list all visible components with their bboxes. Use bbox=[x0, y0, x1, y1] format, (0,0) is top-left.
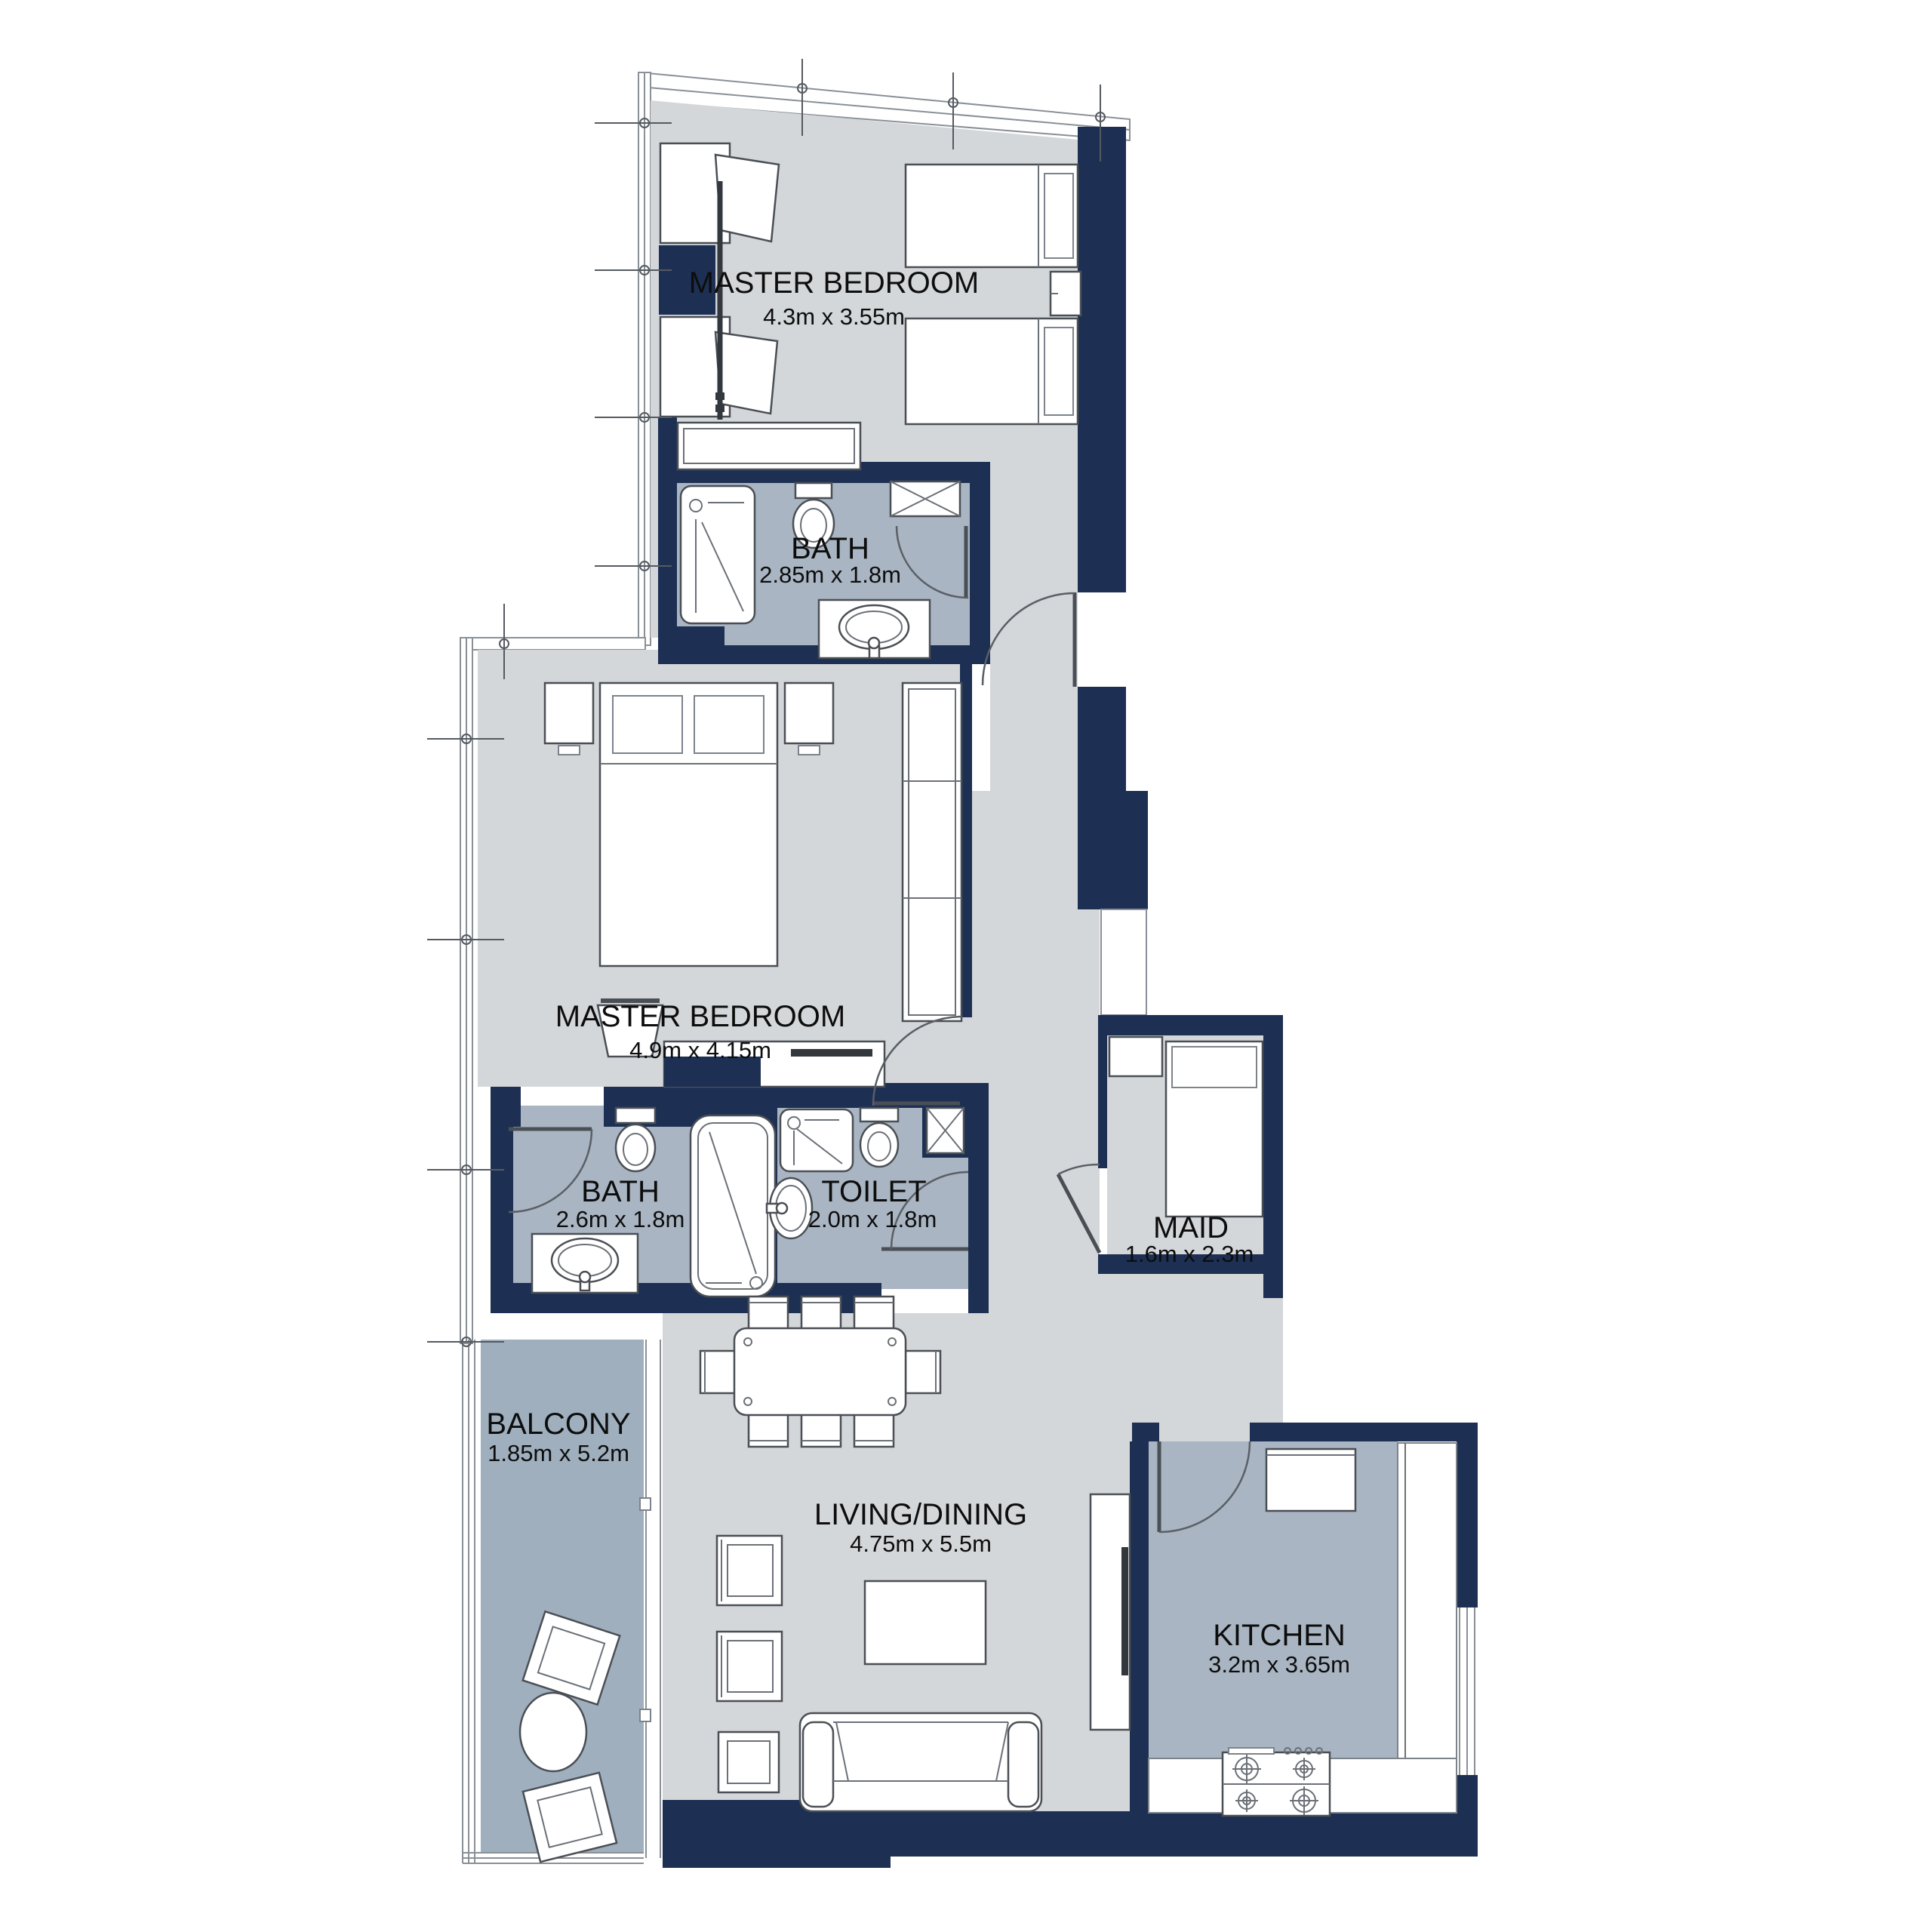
tv-icon bbox=[1121, 1547, 1128, 1675]
sink-vanity-icon bbox=[819, 600, 930, 658]
pillow-icon bbox=[613, 696, 682, 753]
wall-kitchen-top-a bbox=[1132, 1423, 1159, 1441]
wall-bath1-left bbox=[658, 417, 677, 645]
sofa-icon bbox=[800, 1713, 1041, 1811]
nightstand-icon bbox=[545, 683, 593, 743]
window-recess bbox=[1101, 909, 1146, 1015]
wall-kitchen-left bbox=[1130, 1441, 1149, 1811]
floor-plan-page: MASTER BEDROOM 4.3m x 3.55m BATH 2.85m x… bbox=[0, 0, 1932, 1932]
room-dims: 4.75m x 5.5m bbox=[850, 1531, 992, 1557]
wall-right-below-entry bbox=[1078, 687, 1126, 791]
bathtub-icon bbox=[691, 1115, 775, 1297]
wall-right-step bbox=[1078, 791, 1148, 909]
room-dims: 2.0m x 1.8m bbox=[808, 1206, 937, 1232]
floor-plan-svg: MASTER BEDROOM 4.3m x 3.55m BATH 2.85m x… bbox=[0, 0, 1932, 1932]
toilet-icon bbox=[860, 1108, 898, 1167]
nightstand-icon bbox=[1109, 1037, 1162, 1076]
balcony-door-track-icon bbox=[640, 1498, 651, 1510]
room-dims: 2.85m x 1.8m bbox=[759, 561, 901, 588]
stove-icon bbox=[1223, 1748, 1330, 1816]
counter-icon bbox=[1398, 1443, 1457, 1758]
wall-maid-right bbox=[1263, 1015, 1283, 1298]
sink-vanity-icon bbox=[532, 1234, 638, 1293]
room-dims: 2.6m x 1.8m bbox=[556, 1206, 685, 1232]
fridge-icon bbox=[1266, 1449, 1355, 1511]
room-dims: 1.85m x 5.2m bbox=[488, 1440, 629, 1466]
wall-kitchen-right-upper bbox=[1457, 1423, 1478, 1607]
window-band-jog bbox=[462, 638, 645, 650]
coffee-table-icon bbox=[865, 1581, 986, 1664]
desk-item-icon bbox=[791, 1049, 872, 1057]
kitchen-window bbox=[1460, 1607, 1475, 1775]
balcony-table-icon bbox=[520, 1693, 586, 1771]
room-label: MASTER BEDROOM bbox=[555, 1000, 845, 1033]
wardrobe-door-icon bbox=[715, 155, 779, 241]
wall-bath1-right bbox=[970, 462, 990, 664]
balcony-door-track-icon bbox=[640, 1709, 651, 1721]
wall-maid-top bbox=[1098, 1015, 1283, 1035]
room-label: MAID bbox=[1153, 1211, 1229, 1244]
room-label: BATH bbox=[581, 1175, 660, 1208]
tv-unit-icon bbox=[1091, 1494, 1130, 1730]
toilet-icon bbox=[616, 1108, 655, 1171]
wardrobe-column-icon bbox=[903, 683, 961, 1021]
wall-bottom-band bbox=[889, 1811, 1478, 1857]
room-dims: 1.6m x 2.3m bbox=[1125, 1241, 1254, 1267]
shower-icon bbox=[780, 1109, 853, 1171]
room-label: BATH bbox=[791, 532, 869, 565]
wall-right-upper bbox=[1078, 127, 1126, 592]
wardrobe-door-icon bbox=[715, 332, 777, 414]
wall-maid-corner bbox=[1263, 1274, 1283, 1298]
room-label: MASTER BEDROOM bbox=[689, 266, 979, 300]
wall-bath2-top-a bbox=[491, 1087, 521, 1127]
pillow-icon bbox=[1172, 1047, 1257, 1088]
room-label: LIVING/DINING bbox=[814, 1498, 1027, 1531]
dining-table-icon bbox=[734, 1328, 906, 1415]
wall-kitchen-top-b bbox=[1250, 1423, 1478, 1441]
room-dims: 3.2m x 3.65m bbox=[1208, 1651, 1350, 1678]
pillow-icon bbox=[1044, 174, 1073, 258]
wall-wet-bottom-b bbox=[968, 1283, 989, 1313]
wall-toilet-right bbox=[968, 1083, 989, 1313]
nightstand-icon bbox=[785, 683, 833, 743]
room-dims: 4.3m x 3.55m bbox=[763, 303, 905, 330]
room-dims: 4.9m x 4.15m bbox=[629, 1037, 771, 1063]
wall-maid-left bbox=[1098, 1035, 1107, 1168]
room-label: TOILET bbox=[821, 1175, 926, 1208]
room-label: BALCONY bbox=[486, 1407, 630, 1441]
dresser-icon bbox=[678, 423, 860, 469]
pillow-icon bbox=[1044, 328, 1073, 415]
room-label: KITCHEN bbox=[1213, 1619, 1346, 1652]
vestibule-floor bbox=[972, 1015, 1100, 1313]
pillow-icon bbox=[694, 696, 764, 753]
